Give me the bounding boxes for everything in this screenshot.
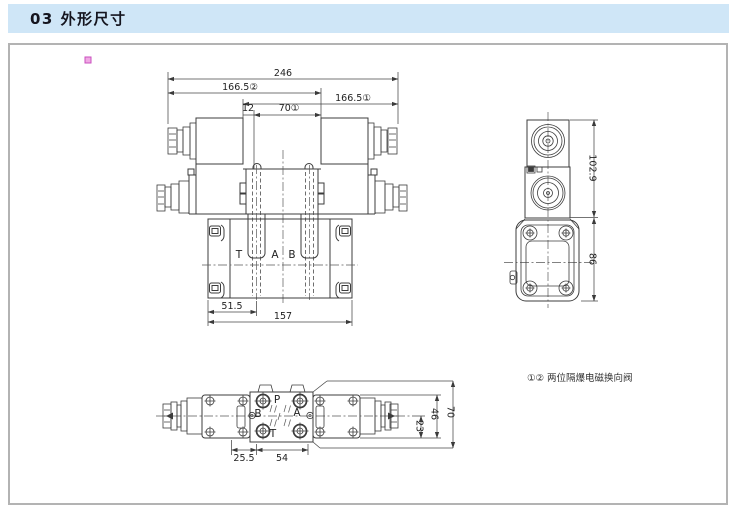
dim-port-center: 51.5 — [221, 301, 242, 312]
front-port-a-label: A — [271, 249, 279, 261]
top-left-wing-plate — [202, 395, 250, 438]
right-solenoid-housing — [321, 118, 368, 164]
lower-right-cable-gland — [375, 181, 407, 213]
dim-upper-height: 102.9 — [587, 154, 598, 181]
valve-type-note: ①② 两位隔爆电磁换向阀 — [527, 372, 633, 384]
dim-edge-to-port: 25.5 — [233, 453, 254, 464]
top-port-t-label: T — [269, 428, 277, 440]
dim-plate-width: 157 — [274, 311, 292, 322]
top-view-drawing: P B A T — [156, 381, 456, 464]
section-arrow-right — [388, 413, 395, 420]
section-arrow-left — [166, 413, 173, 420]
dim-overall-width: 70 — [445, 406, 456, 418]
valve-body-front — [188, 164, 377, 215]
subplate-front — [208, 214, 352, 298]
front-port-t-label: T — [235, 249, 243, 261]
left-solenoid-housing — [196, 118, 243, 164]
front-view-drawing: 246 166.5② 166.5① 12 70① — [157, 68, 407, 326]
pink-marker — [85, 57, 91, 63]
upper-right-cable-gland — [368, 123, 397, 159]
upper-left-cable-gland — [168, 123, 196, 159]
top-port-b-label: B — [254, 408, 261, 420]
dim-port-span: 54 — [276, 453, 288, 464]
dim-half-width: 23 — [414, 420, 425, 432]
dim-lower-height: 86 — [587, 253, 598, 265]
top-port-plate: P B A T — [249, 385, 313, 442]
dim-spool: 70① — [279, 103, 300, 114]
side-view-drawing: 102.9 86 — [504, 112, 598, 308]
dim-stroke-left: 166.5② — [222, 82, 258, 93]
dimension-drawing: 246 166.5② 166.5① 12 70① — [0, 0, 742, 510]
lower-left-cable-gland — [157, 181, 189, 213]
dim-stroke-right: 166.5① — [335, 93, 371, 104]
top-right-wing-plate — [313, 395, 360, 438]
catalog-page: 03 外形尺寸 246 166.5② 166.5① 12 70① — [0, 0, 742, 510]
top-port-a-label: A — [293, 407, 301, 419]
dim-offset: 12 — [242, 103, 254, 114]
top-port-p-label: P — [274, 394, 280, 406]
dim-top-plate-width: 46 — [429, 408, 440, 420]
dim-overall-length: 246 — [274, 68, 292, 79]
front-port-b-label: B — [288, 249, 295, 261]
